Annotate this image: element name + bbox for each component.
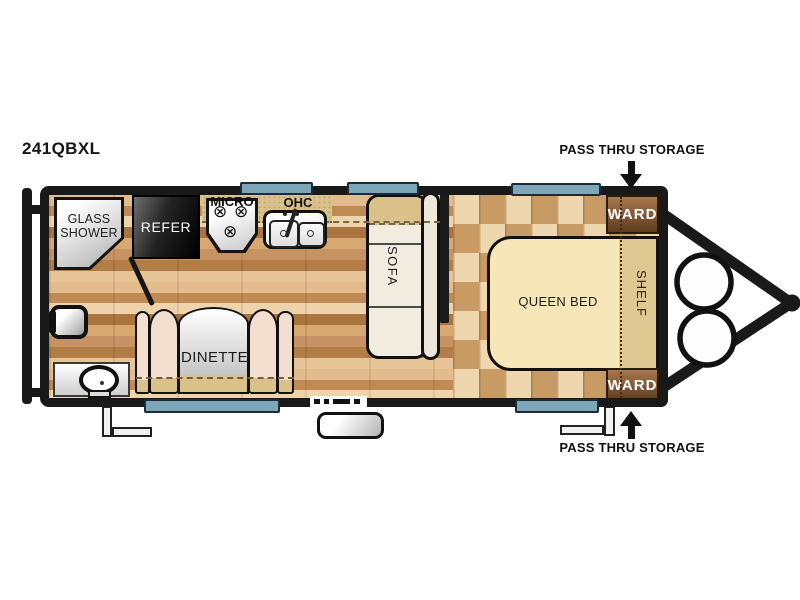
dinette-seat-left: [149, 309, 179, 394]
stabilizer-jack: [102, 406, 112, 437]
faucet-handle: [283, 212, 287, 216]
sofa-back-cushion: [421, 192, 440, 360]
refrigerator-label: REFER: [141, 219, 191, 235]
door-dash: [324, 399, 329, 404]
stabilizer-jack: [604, 406, 615, 436]
microwave-label: MICRO: [204, 194, 260, 209]
sink-basin-right: [298, 222, 325, 247]
toilet-tank: [88, 390, 111, 398]
window: [515, 399, 599, 413]
refrigerator: REFER: [132, 195, 200, 259]
sofa-cushion-divider: [369, 306, 425, 308]
wardrobe-bottom: WARD: [606, 368, 659, 402]
door-dash: [354, 399, 360, 404]
window: [144, 399, 280, 413]
dinette-armrest-right: [277, 311, 294, 394]
model-title: 241QBXL: [22, 139, 100, 159]
wardrobe-label: WARD: [608, 377, 658, 394]
shelf-label: SHELF: [634, 270, 649, 317]
propane-tank-2: [680, 311, 734, 365]
bumper-link-bottom: [31, 388, 44, 397]
stabilizer-jack: [112, 427, 152, 437]
pass-thru-storage-label-bottom: PASS THRU STORAGE: [552, 440, 712, 455]
bumper-link-top: [31, 205, 44, 214]
dinette-label: DINETTE: [181, 349, 247, 366]
arrow-down-icon: [628, 161, 635, 175]
shower-label-line2: SHOWER: [60, 226, 117, 240]
dinette-seat-right: [248, 309, 278, 394]
entry-door-opening: [310, 396, 367, 407]
window: [511, 183, 601, 196]
sofa-label: SOFA: [385, 246, 400, 287]
hitch-coupler: [784, 295, 800, 312]
wardrobe-top: WARD: [606, 195, 659, 234]
floorplan: 241QBXL GLASS SHOWER REFER ⊗ ⊗ ⊗: [0, 0, 800, 600]
shelf-divider-dotted-line: [620, 197, 622, 402]
arrow-up-icon: [628, 426, 635, 439]
overhead-cabinet-label: OHC: [276, 195, 320, 210]
drain-icon: [307, 230, 314, 237]
arrow-down-icon: [620, 174, 642, 189]
entry-step: [317, 412, 384, 439]
dinette-armrest-left: [135, 311, 150, 394]
queen-bed-label: QUEEN BED: [495, 294, 621, 309]
door-dash: [333, 399, 350, 404]
faucet-handle: [295, 212, 299, 216]
burner-icon: ⊗: [223, 223, 237, 240]
window: [347, 182, 419, 195]
bathroom-faucet: [49, 311, 56, 333]
shower-label-line1: GLASS: [68, 212, 111, 226]
toilet-flush-button: [100, 381, 104, 385]
propane-tank-1: [677, 255, 731, 309]
rear-bumper: [22, 188, 32, 404]
bedroom-partition-wall: [440, 192, 449, 323]
pass-thru-storage-label-top: PASS THRU STORAGE: [552, 142, 712, 157]
wardrobe-label: WARD: [608, 206, 658, 223]
dinette-base-dashed-line: [136, 377, 294, 379]
hitch-frame: [645, 185, 800, 417]
door-dash: [314, 399, 320, 404]
stabilizer-jack: [560, 425, 604, 435]
sofa-cushion-divider: [369, 243, 425, 245]
arrow-up-icon: [620, 411, 642, 426]
